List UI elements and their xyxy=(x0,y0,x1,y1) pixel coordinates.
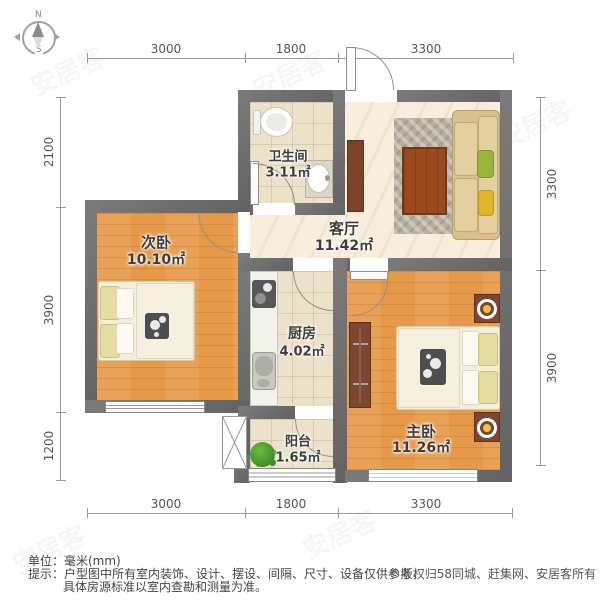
coffee-table xyxy=(402,147,447,215)
room-area: 11.42㎡ xyxy=(315,235,373,255)
room-area: 3.11㎡ xyxy=(265,162,310,181)
dim-right-1: 3300 xyxy=(545,169,559,200)
balcony-railing-window xyxy=(248,468,336,482)
entry-door-opening xyxy=(345,90,397,102)
sofa-pillow-green xyxy=(477,150,494,178)
dim-right-2: 3900 xyxy=(545,353,559,384)
wall xyxy=(295,203,345,215)
tv-cabinet xyxy=(347,140,364,212)
dim-top-3: 3300 xyxy=(411,42,442,56)
nightstand xyxy=(474,412,500,442)
dim-left-1: 2100 xyxy=(42,137,56,168)
wall xyxy=(238,90,345,102)
wall xyxy=(333,258,347,483)
master-bedroom-door-opening xyxy=(350,258,388,271)
wall xyxy=(85,200,97,413)
nightstand xyxy=(474,294,500,323)
pillow xyxy=(116,323,134,354)
dim-top-1: 3000 xyxy=(151,42,182,56)
wall xyxy=(500,90,512,482)
entry-door-arc xyxy=(351,47,394,90)
dim-left-2: 3900 xyxy=(42,295,56,326)
wall xyxy=(388,258,512,271)
lamp-icon xyxy=(477,299,497,319)
room-area: 1.65㎡ xyxy=(275,447,320,466)
compass-needle-north xyxy=(32,22,44,37)
faucet-icon xyxy=(325,175,330,181)
sink-drain-icon xyxy=(257,379,270,387)
wall xyxy=(333,90,345,215)
dim-top-2: 1800 xyxy=(276,42,307,56)
sofa-seat-cushion xyxy=(454,122,478,176)
lamp-icon xyxy=(477,418,497,438)
pillow xyxy=(478,333,498,366)
floorplan-canvas: 安居客 安居客 安居客 安居客 安居客 安居客 安居客 N S 3000 180… xyxy=(0,0,600,600)
pillow xyxy=(116,288,134,319)
compass-needle-south xyxy=(33,37,43,49)
room-area: 10.10㎡ xyxy=(127,249,185,269)
compass-east-arrow xyxy=(54,33,60,41)
sofa-seat-cushion xyxy=(454,178,478,232)
copyright-note: ©版权归58同城、赶集网、安居客所有 xyxy=(389,565,596,582)
dim-left-3: 1200 xyxy=(42,431,56,462)
wall xyxy=(397,90,512,102)
bed-tray xyxy=(420,349,446,385)
balcony-door-opening xyxy=(295,406,333,419)
toilet-bowl-icon xyxy=(266,113,287,131)
plant-icon xyxy=(250,442,275,467)
secondary-bedroom-door-opening xyxy=(238,212,250,253)
wall xyxy=(238,90,250,212)
room-area: 11.26㎡ xyxy=(392,437,450,457)
kitchen-door-opening xyxy=(293,258,333,271)
pillow xyxy=(478,371,498,404)
compass-west-arrow xyxy=(14,33,20,41)
window-secondary-bedroom xyxy=(105,401,205,413)
disclaimer-line2: 具体房源标准以室内查勘和测量为准。 xyxy=(63,578,267,595)
room-area: 4.02㎡ xyxy=(279,341,324,360)
window-master-bedroom xyxy=(368,469,478,482)
dim-bottom-3: 3300 xyxy=(411,497,442,511)
compass-north-label: N xyxy=(34,10,43,20)
burner-icon xyxy=(263,283,272,292)
wall xyxy=(238,258,293,271)
burner-icon xyxy=(255,293,266,304)
sink-basin-icon xyxy=(255,356,273,376)
sofa-pillow-yellow xyxy=(478,190,494,216)
bed-tray xyxy=(145,313,169,339)
dim-bottom-1: 3000 xyxy=(151,497,182,511)
watermark: 安居客 xyxy=(296,500,382,567)
master-bedroom-door-leaf xyxy=(350,271,388,280)
dim-bottom-2: 1800 xyxy=(276,497,307,511)
wardrobe xyxy=(349,322,371,408)
duct-shaft xyxy=(222,416,247,469)
